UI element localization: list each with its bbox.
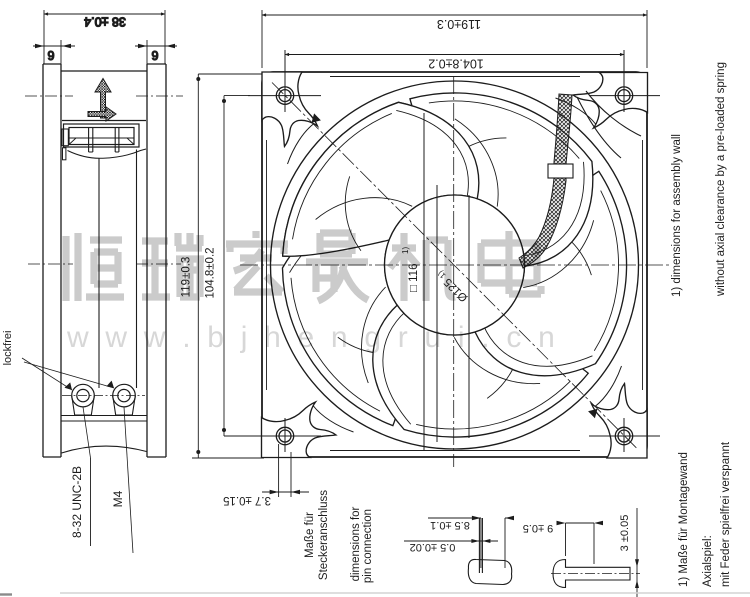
svg-text:8-32 UNC-2B: 8-32 UNC-2B [70,466,84,538]
svg-text:0.5 ±0.02: 0.5 ±0.02 [410,541,456,553]
svg-text:1) Maße für Montagewand: 1) Maße für Montagewand [678,452,690,587]
svg-text:□ 116: □ 116 [408,264,420,292]
svg-text:M4: M4 [111,490,125,507]
svg-text:6: 6 [47,48,54,62]
svg-text:Maße für: Maße für [304,512,316,558]
svg-text:dimensions for: dimensions for [350,506,362,581]
svg-text:8.5 ±0.1: 8.5 ±0.1 [430,519,470,531]
svg-text:3.7 ±0.15: 3.7 ±0.15 [223,494,271,506]
svg-text:pin connection: pin connection [362,509,374,583]
svg-text:w w w . b j h e n g r u i . c: w w w . b j h e n g r u i . c n [66,321,559,354]
svg-text:6: 6 [151,48,158,62]
svg-text:without axial clearance by a p: without axial clearance by a pre-loaded … [715,62,727,297]
svg-text:mit Feder spielfrei verspannt: mit Feder spielfrei verspannt [720,441,732,587]
svg-text:104.8±0.2: 104.8±0.2 [205,247,217,298]
svg-text:119±0.3: 119±0.3 [437,17,481,31]
svg-text:Steckeranschluss: Steckeranschluss [318,490,330,580]
svg-text:1) dimensions for assembly wal: 1) dimensions for assembly wall [671,134,683,297]
svg-text:104.8±0.2: 104.8±0.2 [428,57,484,71]
svg-text:3 ±0.05: 3 ±0.05 [619,515,631,552]
svg-text:38 ±0.4: 38 ±0.4 [84,15,126,29]
svg-text:lockfrei: lockfrei [2,331,14,366]
svg-text:Axialspiel:: Axialspiel: [702,535,714,587]
svg-text:9 ±0.5: 9 ±0.5 [523,522,554,534]
